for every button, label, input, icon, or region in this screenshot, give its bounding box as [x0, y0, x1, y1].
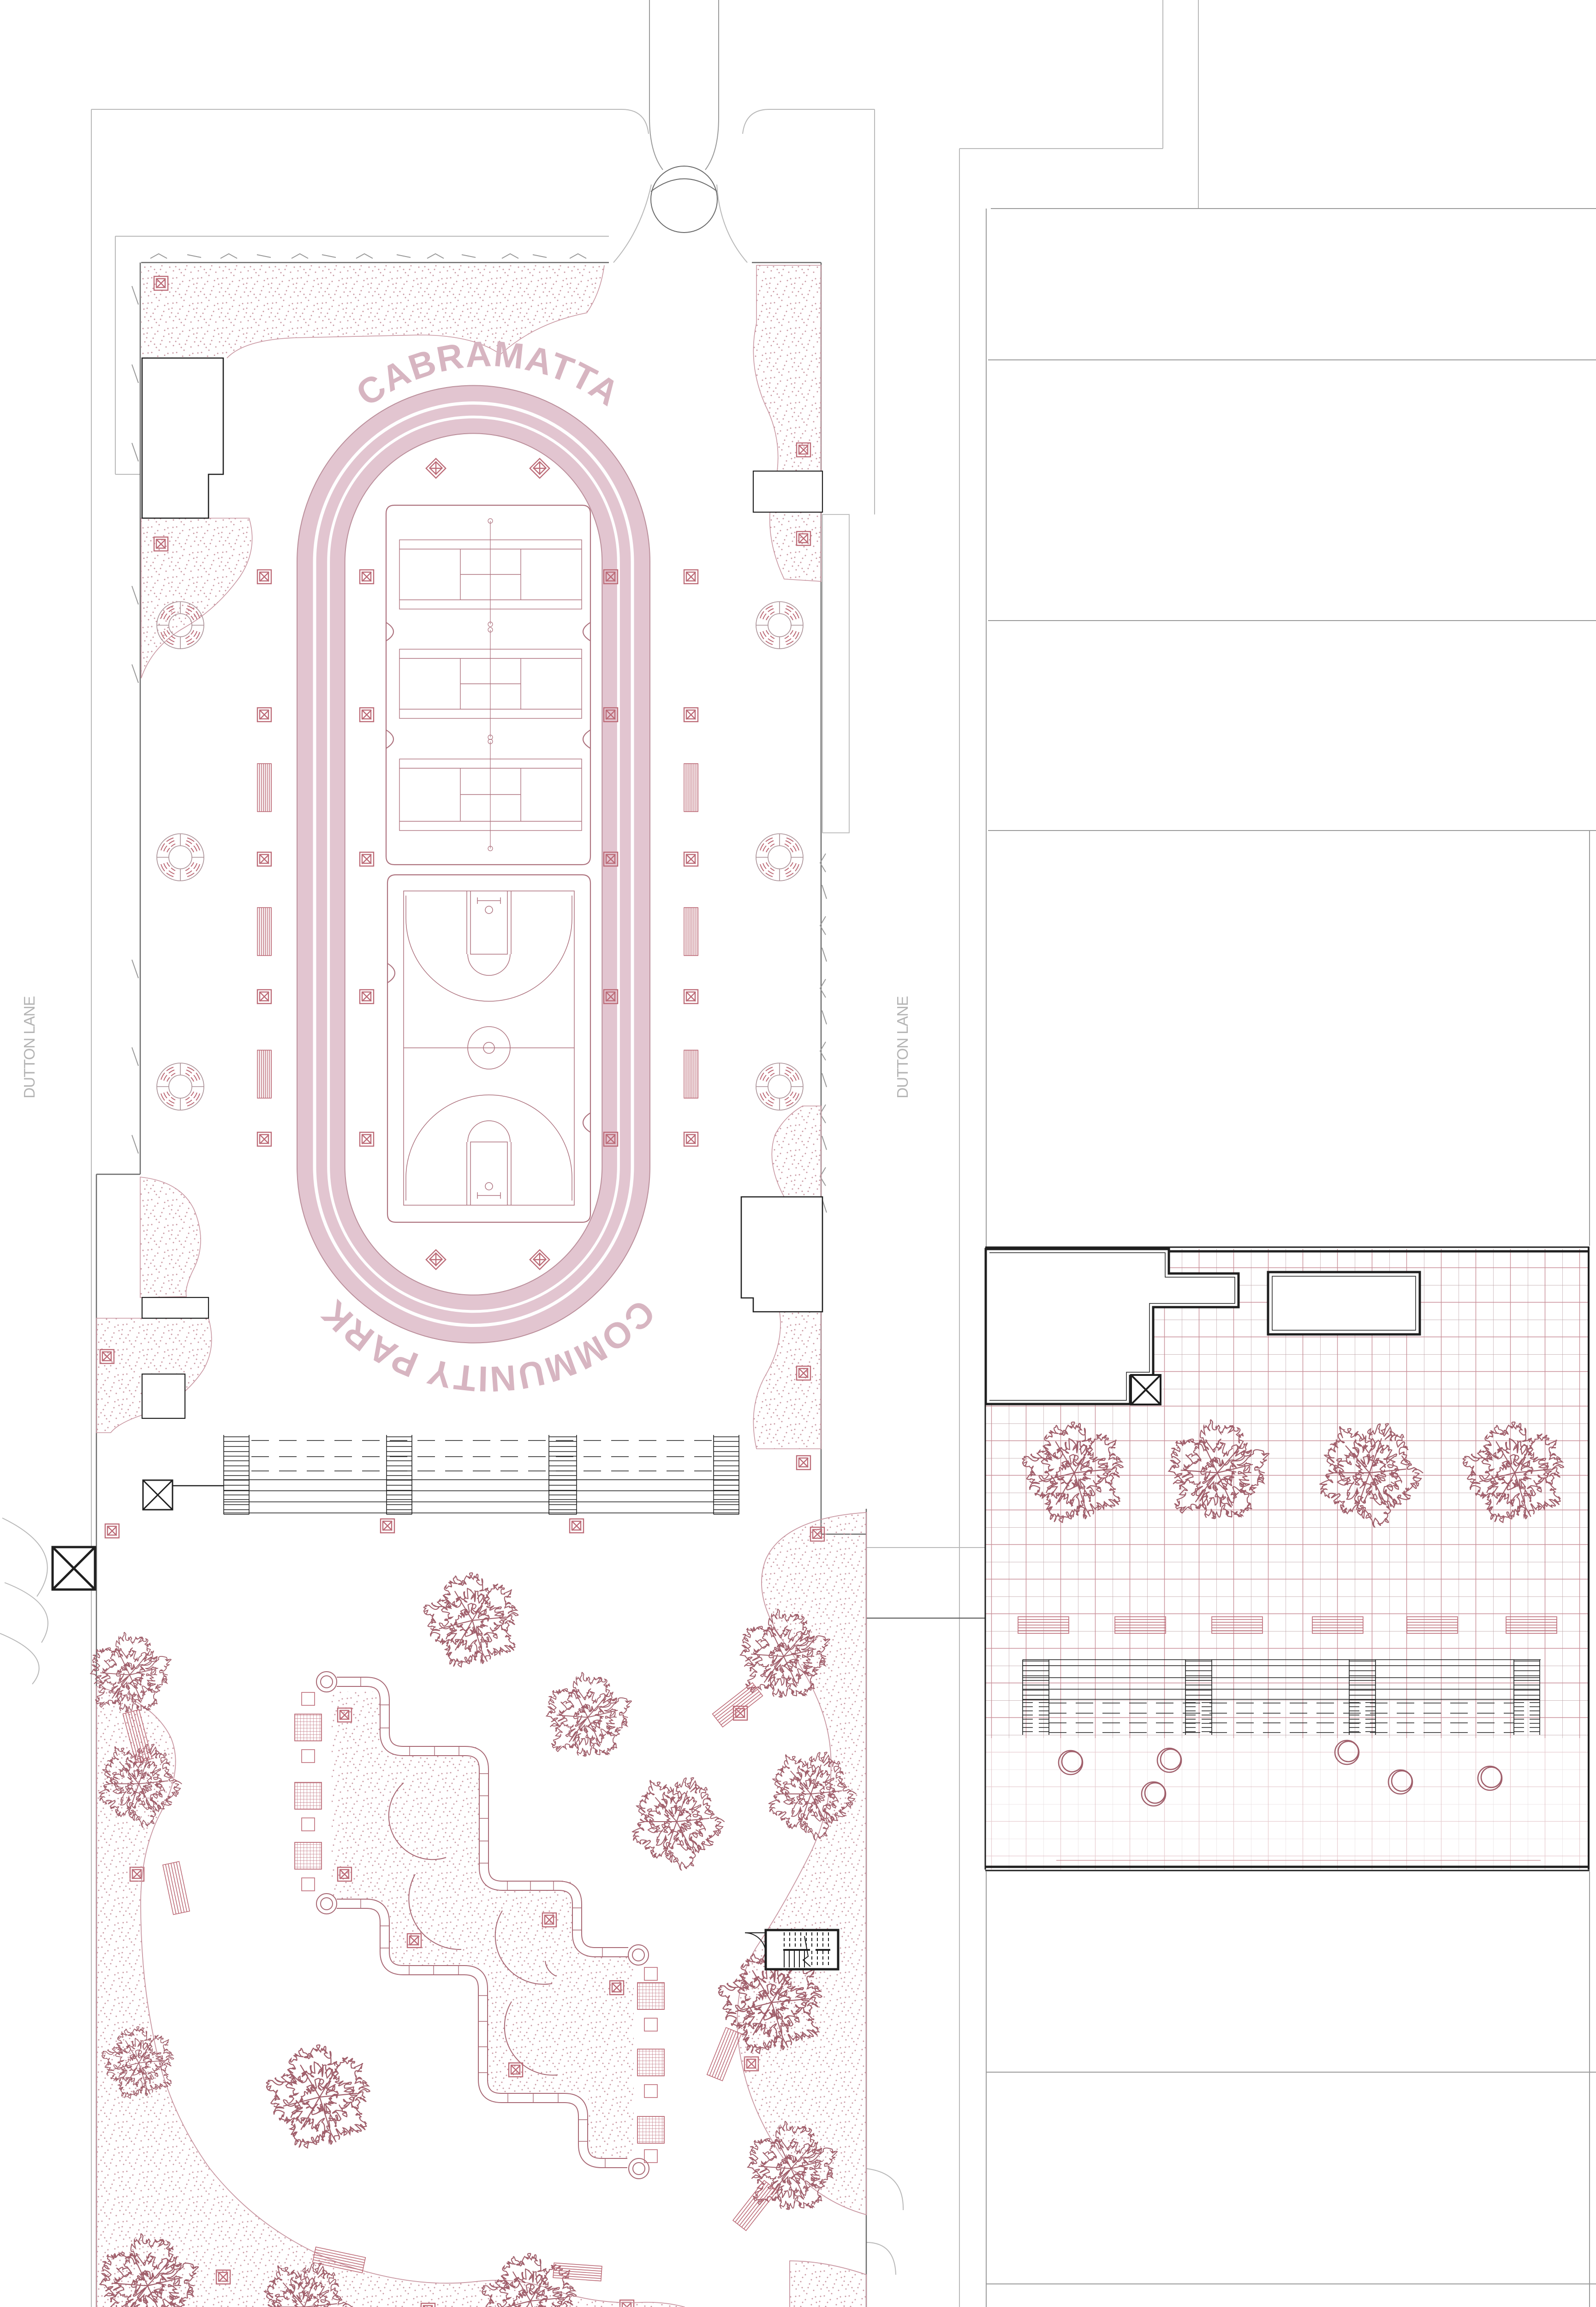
svg-text:DUTTON LANE: DUTTON LANE [894, 996, 911, 1098]
svg-text:DUTTON LANE: DUTTON LANE [21, 996, 38, 1098]
